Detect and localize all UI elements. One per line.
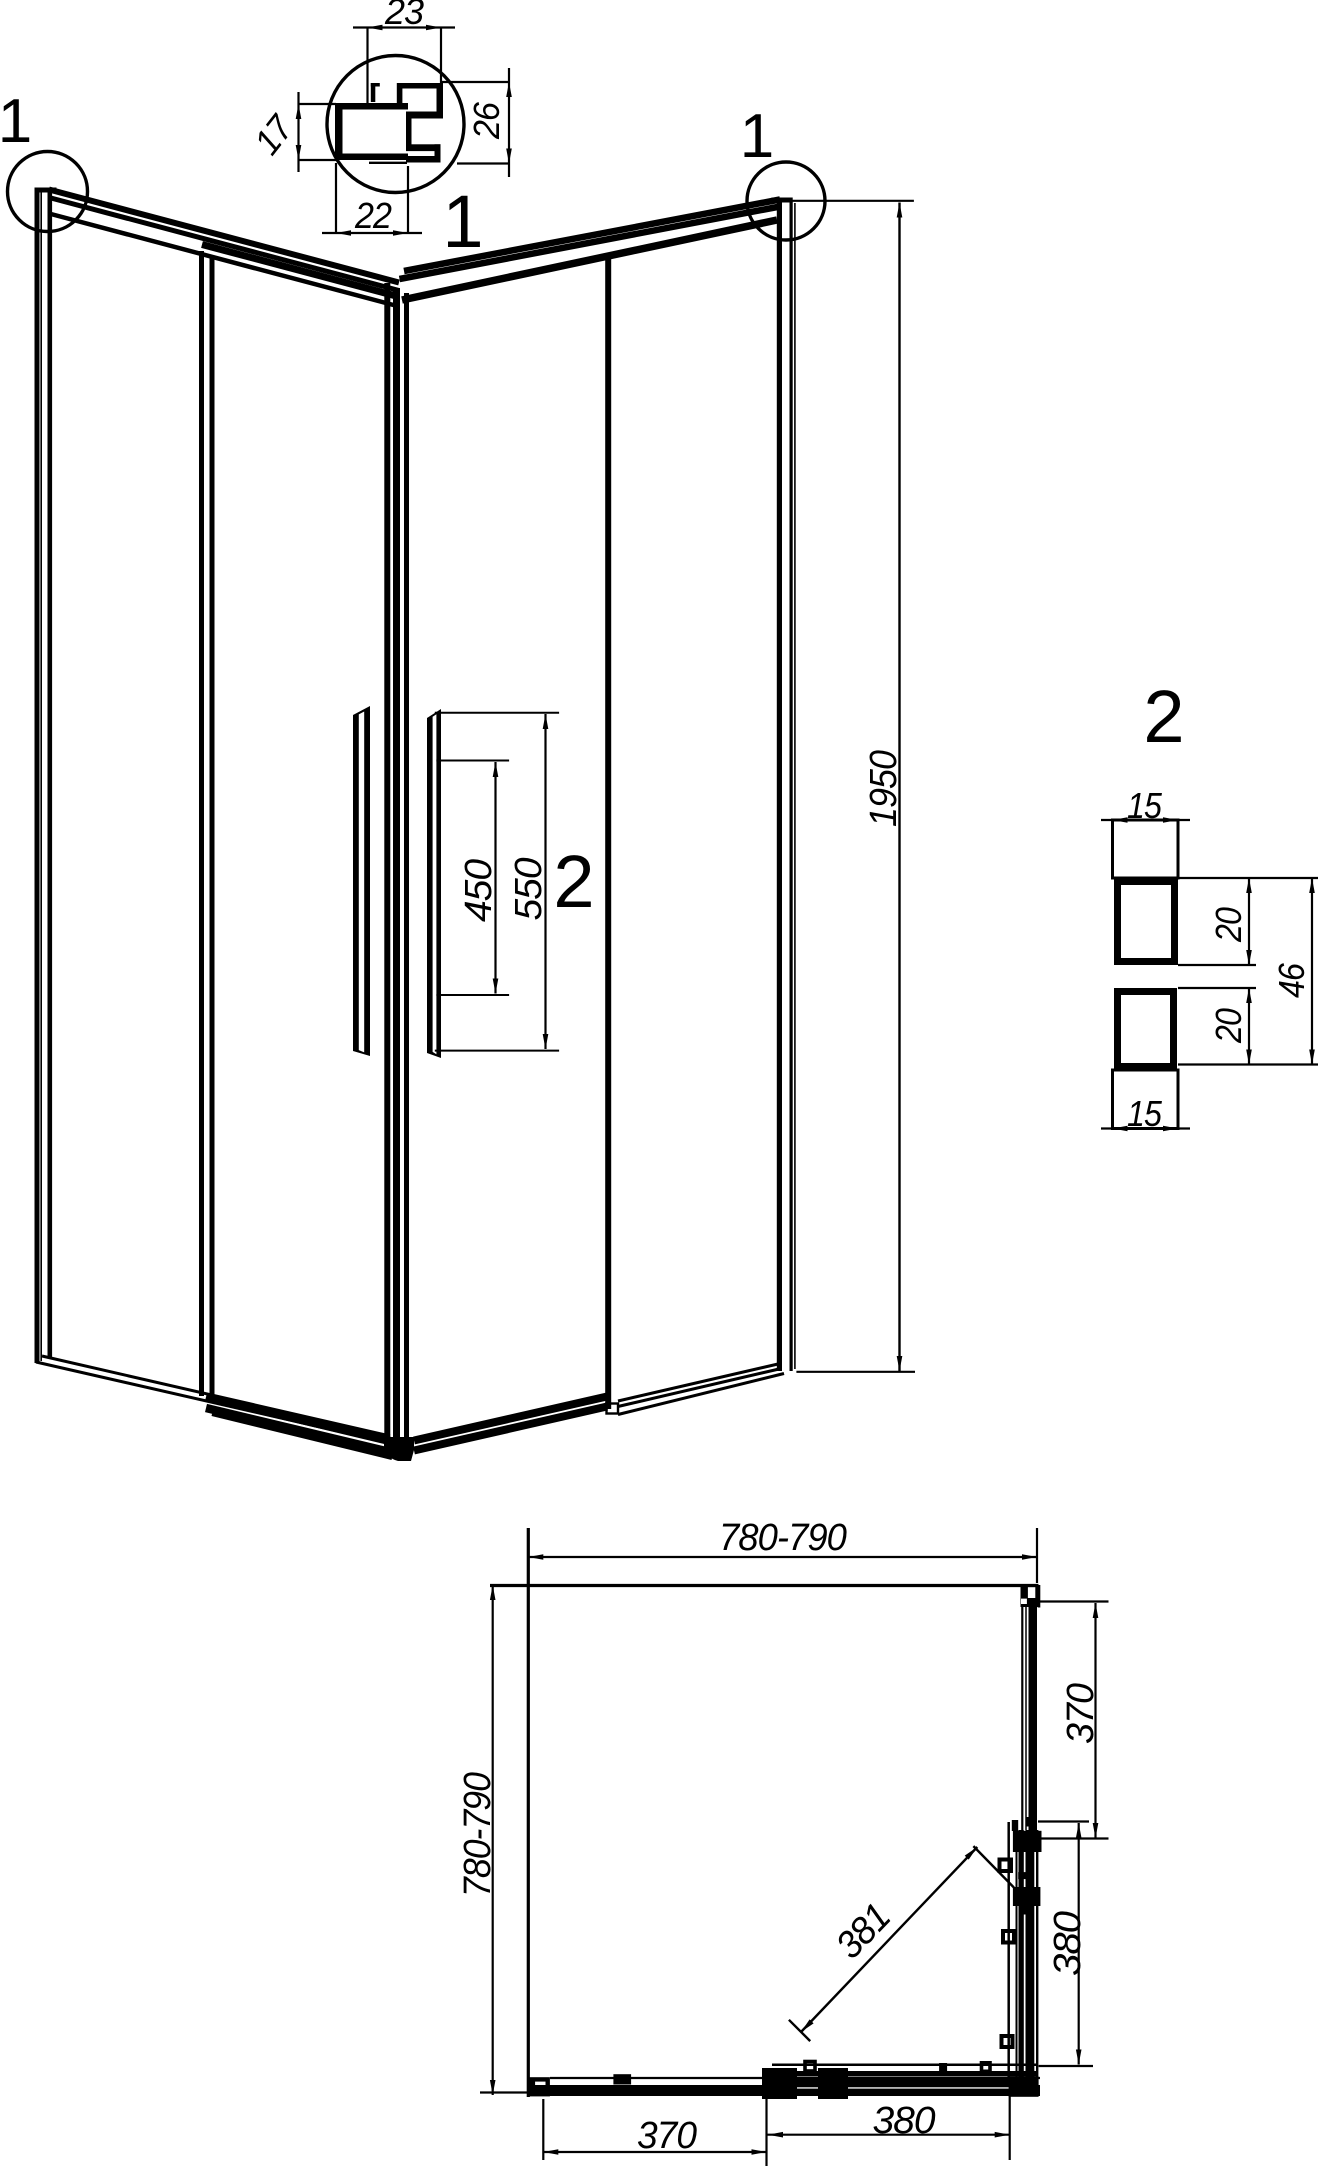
svg-text:370: 370: [1060, 1683, 1102, 1744]
svg-text:780-790: 780-790: [457, 1772, 499, 1897]
svg-text:26: 26: [466, 101, 507, 140]
svg-text:550: 550: [508, 858, 550, 921]
svg-text:1: 1: [442, 180, 483, 263]
svg-text:22: 22: [354, 195, 392, 236]
svg-text:20: 20: [1208, 907, 1249, 943]
svg-text:23: 23: [384, 0, 424, 32]
svg-text:46: 46: [1271, 962, 1312, 998]
svg-text:380: 380: [873, 2100, 936, 2142]
svg-text:1: 1: [0, 87, 32, 156]
svg-text:370: 370: [637, 2115, 697, 2157]
svg-text:1950: 1950: [863, 750, 905, 827]
svg-text:2: 2: [553, 840, 594, 923]
svg-text:20: 20: [1208, 1008, 1249, 1044]
svg-text:2: 2: [1143, 675, 1184, 758]
svg-text:450: 450: [458, 859, 500, 922]
svg-text:1: 1: [740, 102, 774, 171]
svg-text:780-790: 780-790: [719, 1517, 847, 1559]
svg-text:380: 380: [1047, 1911, 1089, 1976]
